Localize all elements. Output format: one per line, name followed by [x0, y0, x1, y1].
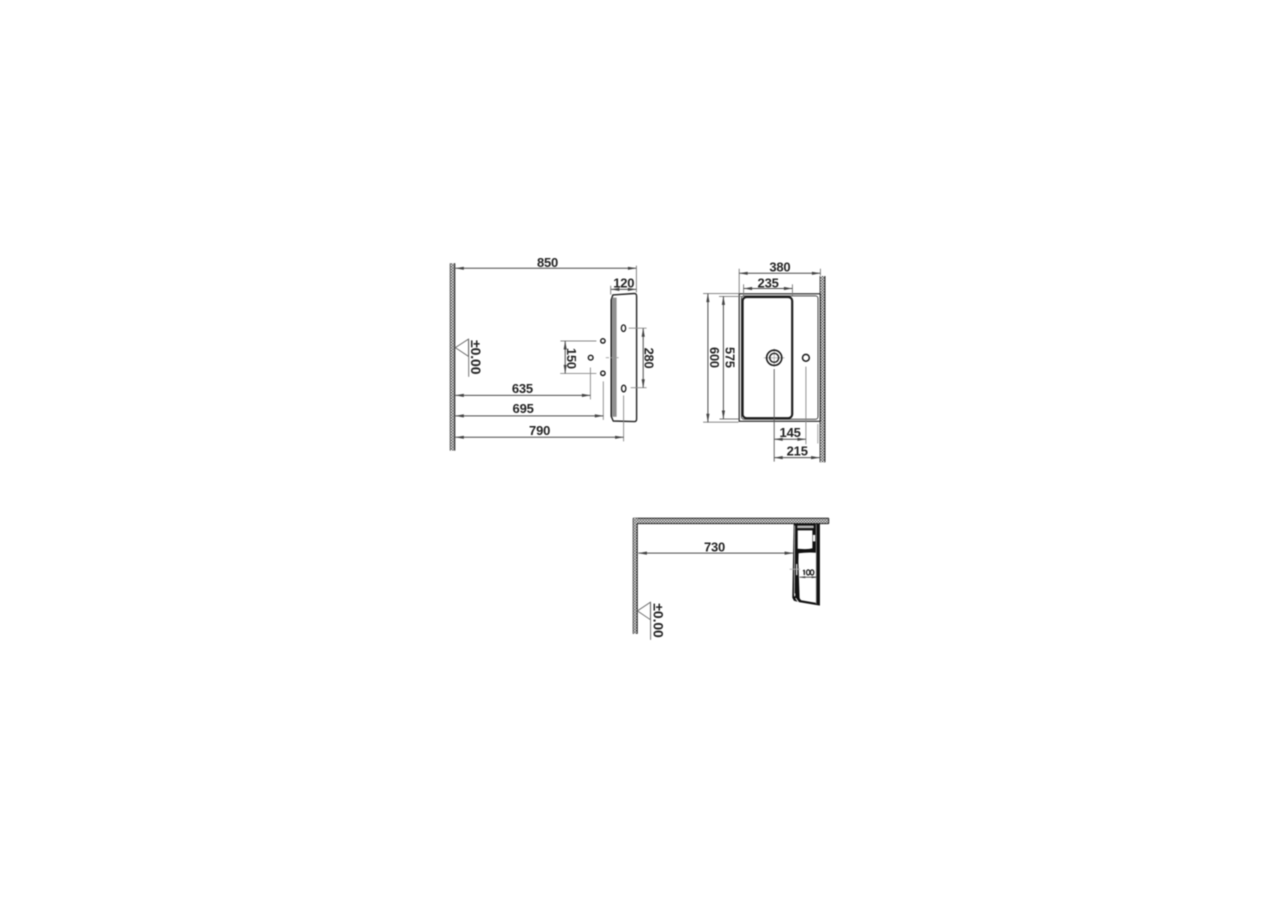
svg-text:850: 850: [537, 255, 558, 270]
svg-text:120: 120: [613, 275, 634, 290]
svg-text:575: 575: [722, 347, 737, 368]
svg-text:280: 280: [641, 348, 656, 369]
svg-text:380: 380: [769, 259, 790, 274]
svg-text:695: 695: [513, 401, 534, 416]
svg-text:600: 600: [707, 347, 722, 368]
svg-text:145: 145: [780, 425, 801, 440]
svg-text:150: 150: [564, 348, 579, 369]
svg-text:635: 635: [512, 381, 533, 396]
svg-text:±0.00: ±0.00: [468, 340, 484, 375]
svg-text:730: 730: [704, 539, 725, 554]
svg-text:±0.00: ±0.00: [650, 603, 666, 638]
svg-text:215: 215: [787, 444, 808, 459]
svg-text:790: 790: [529, 423, 550, 438]
svg-text:235: 235: [758, 275, 779, 290]
